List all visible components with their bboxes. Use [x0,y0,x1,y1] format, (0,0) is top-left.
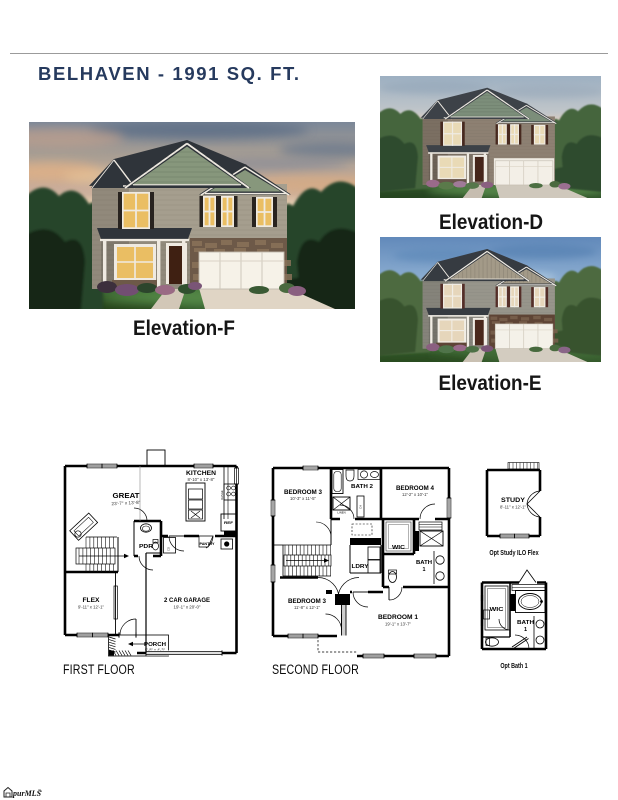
svg-text:WIC: WIC [490,607,504,613]
svg-text:BEDROOM 4: BEDROOM 4 [396,485,435,492]
svg-text:BATH: BATH [416,560,432,566]
svg-text:BATH: BATH [517,620,534,626]
svg-text:TM: TM [38,789,42,793]
svg-text:10'-3" x 11'-5": 10'-3" x 11'-5" [290,496,316,501]
svg-text:19'-1" x 20'-0": 19'-1" x 20'-0" [174,605,201,610]
svg-text:PANTRY: PANTRY [200,542,216,546]
svg-text:19'-1" x 13'-7": 19'-1" x 13'-7" [385,622,411,627]
svg-text:BEDROOM 3: BEDROOM 3 [288,598,327,605]
svg-text:LINEN: LINEN [337,511,345,515]
svg-text:8'-10" x 13'-8": 8'-10" x 13'-8" [188,477,215,482]
svg-text:1: 1 [423,567,426,573]
svg-text:BEDROOM 3: BEDROOM 3 [284,489,323,496]
svg-text:BEDROOM 1: BEDROOM 1 [378,614,419,621]
svg-text:WIC: WIC [392,545,405,551]
svg-text:KITCHEN: KITCHEN [186,470,216,477]
svg-text:REF: REF [224,521,233,525]
svg-text:PDR: PDR [139,544,153,550]
svg-text:11'-8" x 12'-1": 11'-8" x 12'-1" [294,605,320,610]
svg-text:2 CAR GARAGE: 2 CAR GARAGE [164,597,211,604]
svg-text:8'-11" x 12'-1": 8'-11" x 12'-1" [500,505,526,510]
svg-text:RANGE: RANGE [220,490,224,499]
svg-text:LDRY: LDRY [352,564,369,570]
svg-text:1: 1 [524,627,527,633]
svg-text:CO: CO [167,547,171,551]
svg-text:GREAT: GREAT [113,493,141,500]
svg-text:FLEX: FLEX [83,597,101,604]
svg-text:12'-2" x 10'-1": 12'-2" x 10'-1" [402,492,428,497]
svg-text:9'-11" x 12'-1": 9'-11" x 12'-1" [78,605,104,610]
svg-text:BATH 2: BATH 2 [351,484,373,490]
svg-text:STUDY: STUDY [501,497,526,504]
svg-text:23'-7" x 13'-8": 23'-7" x 13'-8" [111,500,141,507]
svg-text:CH: CH [360,505,363,509]
